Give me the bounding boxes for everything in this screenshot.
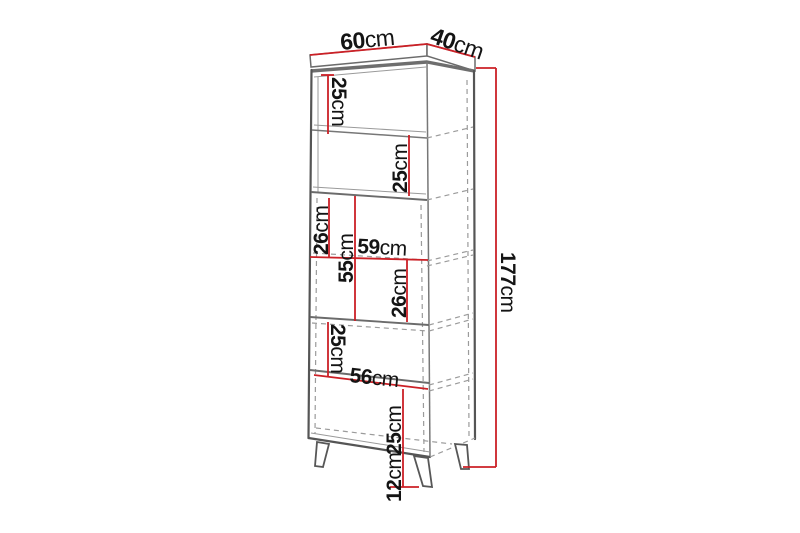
furniture-dimension-page: 60cm40cm177cm25cm25cm26cm55cm59cm26cm25c… <box>0 0 800 533</box>
leg-front-right <box>414 456 432 487</box>
dimension-label-compartment-lower-height: 26cm <box>388 269 411 318</box>
leg-front-left <box>315 442 329 467</box>
dimension-labels: 60cm40cm177cm25cm25cm26cm55cm59cm26cm25c… <box>310 22 519 502</box>
dimension-label-total-height: 177cm <box>496 252 519 313</box>
dimension-label-shelf-section-height: 25cm <box>326 324 349 373</box>
dimension-label-niche-1-height: 25cm <box>327 77 350 126</box>
dimension-label-door-section-height: 55cm <box>335 234 358 283</box>
dimension-label-inner-width-upper: 59cm <box>357 235 407 261</box>
dimension-label-inner-width-lower: 56cm <box>348 364 399 392</box>
dimension-label-compartment-upper-height: 26cm <box>310 206 333 255</box>
dimension-label-leg-height: 12cm <box>383 453 406 502</box>
leg-back-right <box>455 444 469 469</box>
dimension-label-base-section-height: 25cm <box>383 406 406 455</box>
dimension-label-niche-2-height: 25cm <box>389 144 412 193</box>
dimension-label-top-width: 60cm <box>339 24 396 55</box>
furniture-dimension-diagram: 60cm40cm177cm25cm25cm26cm55cm59cm26cm25c… <box>0 0 800 533</box>
